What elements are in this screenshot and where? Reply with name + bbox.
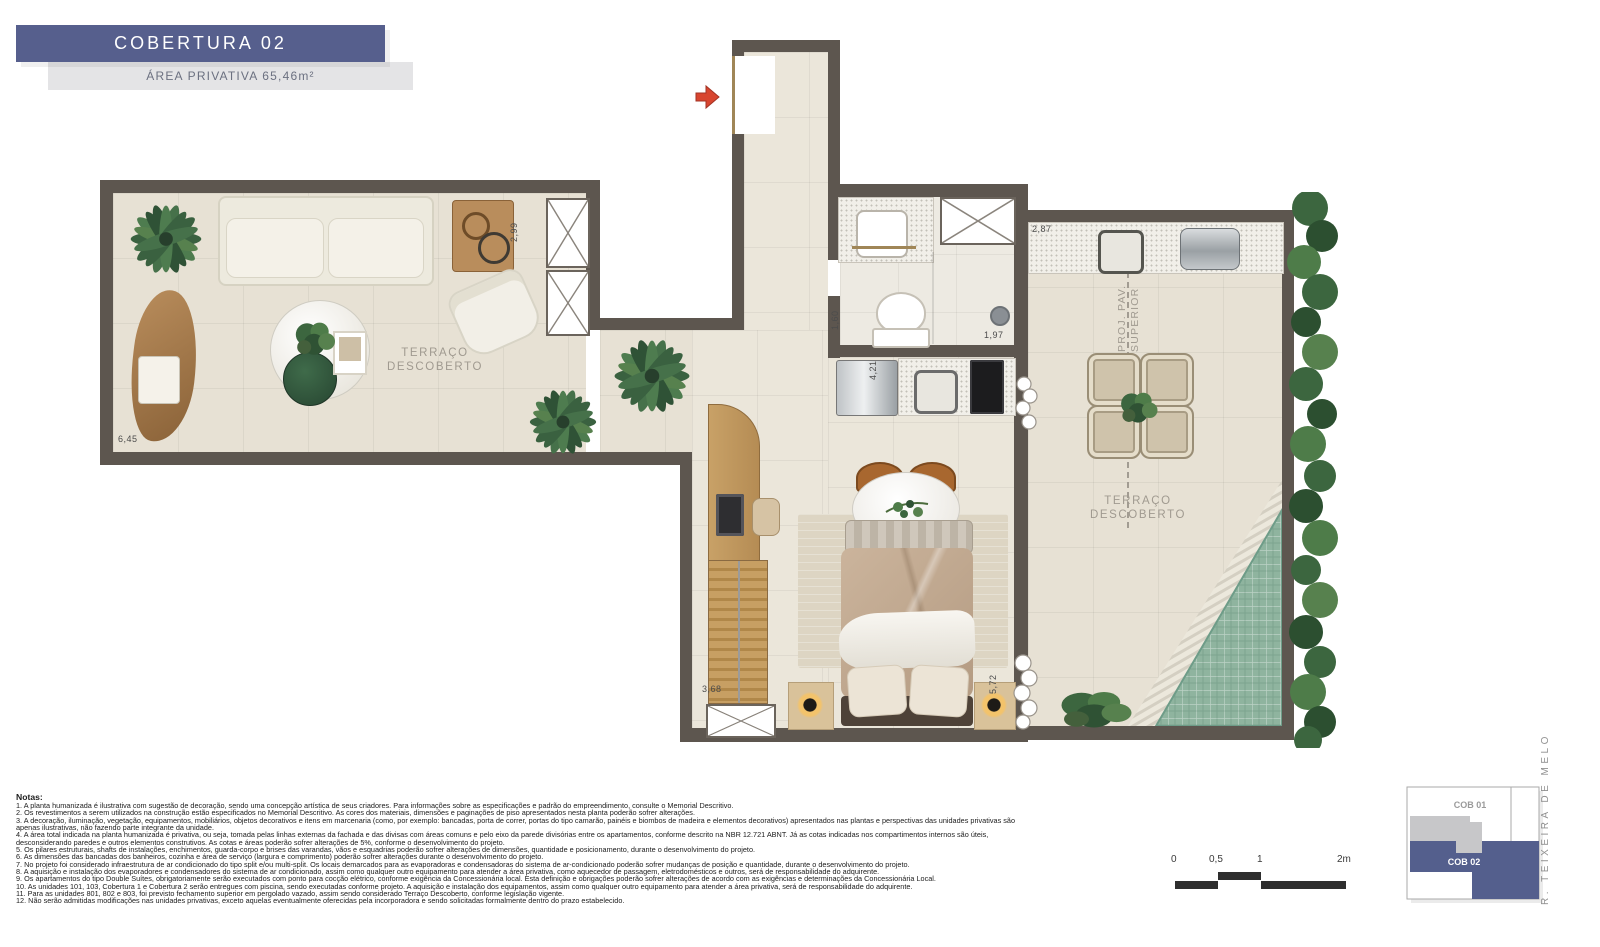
scale-tick-0: 0 bbox=[1171, 854, 1177, 865]
toilet-tank bbox=[872, 328, 930, 348]
proj-label-line2: SUPERIOR bbox=[1129, 285, 1142, 352]
bed-blanket bbox=[838, 610, 976, 671]
kitchen-sink bbox=[914, 370, 958, 414]
label-left-terrace-line2: DESCOBERTO bbox=[375, 360, 495, 374]
label-right-terrace-line1: TERRAÇO bbox=[1078, 494, 1198, 508]
laptop bbox=[716, 494, 744, 536]
dim-bath-length: 1,97 bbox=[984, 330, 1004, 340]
street-name-label: R. TEIXEIRA DE MELO bbox=[1540, 765, 1551, 905]
refrigerator bbox=[836, 360, 898, 416]
keyplan-cob01-shape-a bbox=[1410, 816, 1470, 841]
note-item: 4. A área total indicada na planta human… bbox=[16, 831, 1024, 846]
terrace-center-plant bbox=[1112, 382, 1164, 432]
dim-stairs-length: 3,68 bbox=[702, 684, 722, 694]
label-right-terrace: TERRAÇO DESCOBERTO bbox=[1078, 494, 1198, 522]
dim-right-terrace-depth: 5,72 bbox=[988, 650, 1000, 694]
stairs-rail bbox=[738, 561, 740, 703]
wall-vine-lower bbox=[1012, 654, 1040, 730]
table-plant-sprig bbox=[878, 492, 934, 526]
wall-corridor-right bbox=[828, 52, 840, 184]
bathroom-sliding-door bbox=[852, 246, 916, 249]
window-x-box-bedroom bbox=[706, 704, 776, 738]
shaft-x-box-2 bbox=[546, 270, 590, 336]
wall-bathroom-top bbox=[828, 184, 1028, 197]
right-hedge bbox=[1284, 192, 1340, 748]
keyplan-cob02-label: COB 02 bbox=[1448, 857, 1481, 867]
scale-bar-segment-lower-1 bbox=[1175, 881, 1218, 889]
stairs bbox=[708, 560, 768, 704]
pillow-left bbox=[846, 664, 907, 718]
floor-plan-page: COBERTURA 02 ÁREA PRIVATIVA 65,46m² bbox=[0, 0, 1600, 947]
private-area-banner: ÁREA PRIVATIVA 65,46m² bbox=[48, 62, 413, 90]
wall-right-terrace-top bbox=[1014, 210, 1294, 222]
pillow-right bbox=[908, 664, 969, 718]
wall-vine-upper bbox=[1014, 376, 1040, 432]
cooktop bbox=[970, 360, 1004, 414]
sofa-cushion-right bbox=[328, 218, 424, 278]
wall-bedroom-left bbox=[680, 452, 692, 742]
dim-left-terrace-width: 6,45 bbox=[118, 434, 138, 444]
unit-title: COBERTURA 02 bbox=[114, 33, 287, 54]
scale-tick-1: 1 bbox=[1257, 854, 1263, 865]
label-left-terrace: TERRAÇO DESCOBERTO bbox=[375, 346, 495, 374]
keyplan-cob01-label: COB 01 bbox=[1454, 800, 1487, 810]
dim-left-terrace-depth: 2,99 bbox=[509, 198, 521, 242]
unit-title-banner: COBERTURA 02 bbox=[16, 25, 385, 62]
sofa-cushion-left bbox=[226, 218, 324, 278]
desk bbox=[708, 404, 760, 566]
label-right-terrace-line2: DESCOBERTO bbox=[1078, 508, 1198, 522]
lamp-left bbox=[797, 692, 823, 718]
note-item: 3. A decoração, iluminação, vegetação, e… bbox=[16, 817, 1024, 832]
terrace-counter bbox=[1028, 222, 1284, 274]
label-left-terrace-line1: TERRAÇO bbox=[375, 346, 495, 360]
palm-plant-3 bbox=[600, 322, 704, 430]
scale-tick-2m: 2m bbox=[1337, 854, 1351, 865]
notes-block: Notas: 1. A planta humanizada é ilustrat… bbox=[16, 793, 1024, 905]
lamp-right bbox=[981, 692, 1007, 718]
pool-water bbox=[1156, 510, 1282, 726]
entry-arrow-icon bbox=[694, 84, 722, 110]
dim-bath-width: 1,60 bbox=[830, 286, 842, 330]
note-item: 12. Não serão admitidas modificações nas… bbox=[16, 897, 1024, 904]
palm-plant-1 bbox=[112, 190, 220, 288]
shower-divider bbox=[932, 252, 934, 344]
private-area-label: ÁREA PRIVATIVA 65,46m² bbox=[146, 69, 314, 83]
barbecue-grill bbox=[1180, 228, 1240, 270]
coffee-table-plant bbox=[286, 312, 342, 364]
scale-tick-05: 0,5 bbox=[1209, 854, 1223, 865]
desk-chair bbox=[752, 498, 780, 536]
side-table-decor-ring-2 bbox=[478, 232, 510, 264]
shower-head bbox=[990, 306, 1010, 326]
key-plan: COB 01 COB 02 bbox=[1398, 782, 1548, 914]
scale-bar-segment-lower-2 bbox=[1261, 881, 1346, 889]
shaft-x-box-bathroom bbox=[940, 197, 1016, 245]
keyplan-cob01-shape-b bbox=[1470, 822, 1482, 841]
scale-bar-segment-upper bbox=[1218, 872, 1261, 880]
label-upper-floor-projection: PROJ. PAV. SUPERIOR bbox=[1116, 285, 1142, 352]
dim-counter-length: 2,87 bbox=[1032, 224, 1052, 234]
proj-label-line1: PROJ. PAV. bbox=[1116, 285, 1129, 352]
wall-corridor-top bbox=[732, 40, 840, 52]
bench-tray bbox=[138, 356, 180, 404]
keyplan-cob01-shape-c bbox=[1456, 841, 1482, 853]
entry-door bbox=[732, 56, 775, 134]
dim-kitchen-length: 4,21 bbox=[868, 336, 880, 380]
terrace-sink bbox=[1098, 230, 1144, 274]
shaft-x-box-1 bbox=[546, 198, 590, 268]
pool-side-plants bbox=[1044, 682, 1144, 736]
bathroom-sink bbox=[856, 210, 908, 258]
